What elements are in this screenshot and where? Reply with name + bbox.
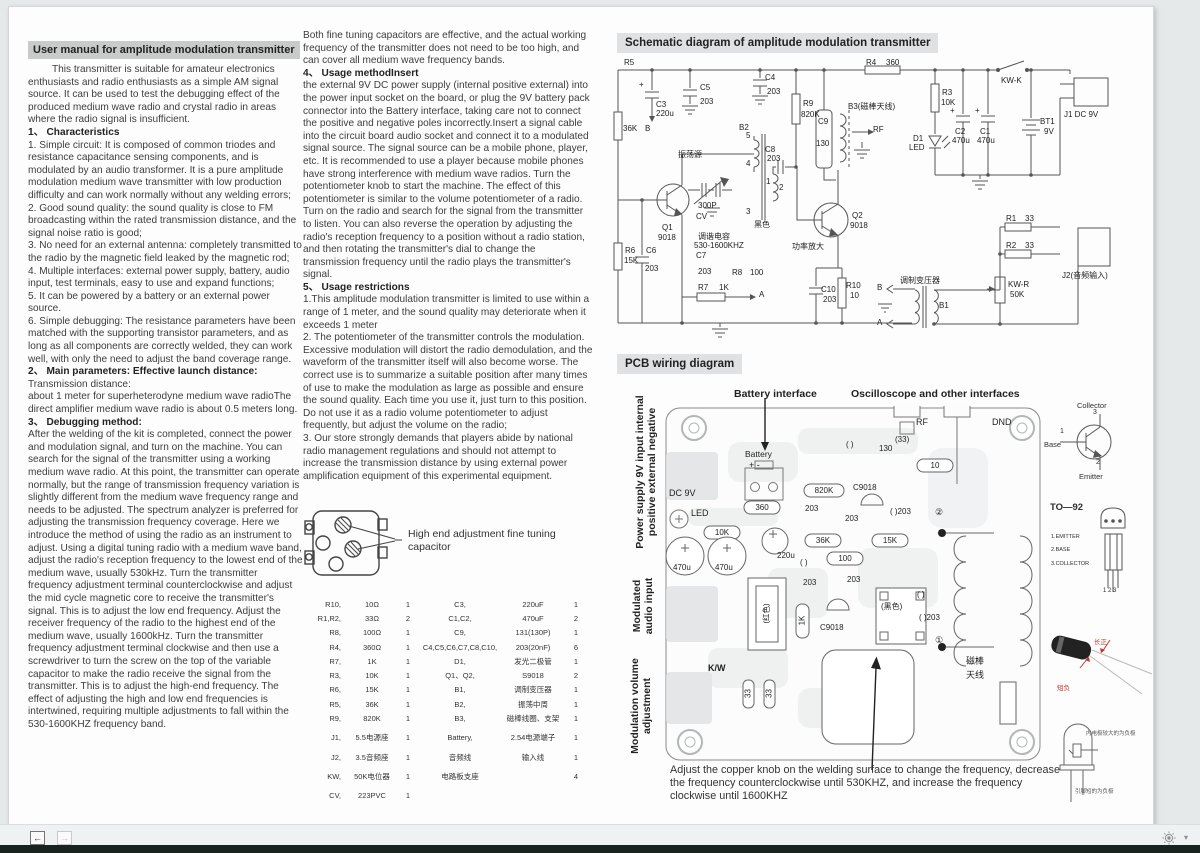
parts-table: R10, 10Ω 1 C3, 220uF 1 R1,R2, 33Ω 2 C1,C… xyxy=(306,597,578,803)
c6-label: C6 xyxy=(646,246,656,255)
part-ref-2: 电路板支座 xyxy=(418,771,502,782)
c10-value: 203 xyxy=(823,295,836,304)
part-ref: R4, xyxy=(306,643,346,652)
r3-label: R3 xyxy=(942,88,952,97)
c5-value: 203 xyxy=(700,97,713,106)
characteristic-1: 1. Simple circuit: It is composed of com… xyxy=(28,140,304,203)
cv-label: CV xyxy=(696,212,707,221)
transmission-distance-text: about 1 meter for superheterodyne medium… xyxy=(28,391,304,416)
c4-label: C4 xyxy=(765,73,775,82)
part-value-2: 调制变压器 xyxy=(502,684,564,695)
r1-value: 33 xyxy=(1025,214,1034,223)
c9-value: 130 xyxy=(816,139,829,148)
r2-value: 33 xyxy=(1025,241,1034,250)
c4-value: 203 xyxy=(767,87,780,96)
c3-label: C3 xyxy=(656,100,666,109)
part-ref: CV, xyxy=(306,791,346,800)
display-settings-icon[interactable] xyxy=(1160,830,1178,846)
c2-value: 470u xyxy=(952,136,970,145)
r5-value: 36K xyxy=(623,124,637,133)
c1-plus: + xyxy=(975,106,980,115)
d1-label: D1 xyxy=(913,134,923,143)
restriction-3: 3. Our store strongly demands that playe… xyxy=(303,433,593,483)
part-value: 1K xyxy=(346,657,398,666)
rod-antenna-label-2: 天线 xyxy=(966,668,984,681)
part-qty-2: 1 xyxy=(564,753,578,762)
part-ref: R5, xyxy=(306,700,346,709)
d1-value: LED xyxy=(909,143,925,152)
pcb-title: PCB wiring diagram xyxy=(617,354,742,374)
part-value: 360Ω xyxy=(346,643,398,652)
a-test-point: A xyxy=(759,290,764,299)
r8-label: R8 xyxy=(732,268,742,277)
part-ref-2: C3, xyxy=(418,600,502,609)
part-value-2: 振荡中周 xyxy=(502,699,564,710)
part-value-2: 发光二极管 xyxy=(502,656,564,667)
intro-paragraph: This transmitter is suitable for amateur… xyxy=(28,64,304,127)
q2-footprint-label: C9018 xyxy=(820,623,844,632)
capacitor-positive-note: 长正 xyxy=(1094,636,1107,646)
c220u-label: 220u xyxy=(777,551,795,560)
part-value-2: 输入线 xyxy=(502,752,564,763)
side-label-audio: Modulated audio input xyxy=(631,574,657,638)
section-4-heading: 4、 Usage methodInsert xyxy=(303,68,593,81)
section-3-heading: 3、 Debugging method: xyxy=(28,417,304,430)
table-row: CV, 223PVC 1 xyxy=(306,789,578,803)
part-value-2: S9018 xyxy=(502,671,564,680)
restriction-2: 2. The potentiometer of the transmitter … xyxy=(303,332,593,433)
q2-label: Q2 xyxy=(852,211,863,220)
part-value-2: 470uF xyxy=(502,614,564,623)
usage-method-text: the external 9V DC power supply (interna… xyxy=(303,80,593,282)
part-qty-2: 2 xyxy=(564,671,578,680)
base-pin-number: 1 xyxy=(1060,428,1064,435)
r6-label: R6 xyxy=(625,246,635,255)
r10-label: R10 xyxy=(846,281,861,290)
c1-value: 470u xyxy=(977,136,995,145)
c3-plus: + xyxy=(639,80,644,89)
led-label: LED xyxy=(691,508,709,518)
part-value: 10K xyxy=(346,671,398,680)
pad-pair-label-3: ( ) xyxy=(917,590,925,599)
part-qty: 1 xyxy=(398,600,418,609)
part-ref-2: D1, xyxy=(418,657,502,666)
kw-pot-label: K/W xyxy=(708,663,726,673)
to92-pin1-label: 1.EMITTER xyxy=(1051,534,1080,540)
chevron-down-icon[interactable]: ▾ xyxy=(1184,833,1188,842)
kwk-label: KW-K xyxy=(1001,76,1022,85)
debugging-method-text: After the welding of the kit is complete… xyxy=(28,429,304,731)
c10-label: C10 xyxy=(821,285,836,294)
part-value: 15K xyxy=(346,685,398,694)
part-qty: 2 xyxy=(398,614,418,623)
trimmer-capacitor-diagram xyxy=(303,505,403,585)
to92-pins-label: 1 2 3 xyxy=(1103,588,1116,594)
fine-tuning-paragraph: Both fine tuning capacitors are effectiv… xyxy=(303,30,593,68)
c7-label: C7 xyxy=(696,251,706,260)
r8-value: 100 xyxy=(750,268,763,277)
q1-label: Q1 xyxy=(662,223,673,232)
c2-label: C2 xyxy=(955,127,965,136)
part-value: 5.5电源座 xyxy=(346,732,398,743)
bt1-value: 9V xyxy=(1044,127,1054,136)
forward-button[interactable]: → xyxy=(57,831,72,845)
capacitor-negative-note: 短负 xyxy=(1057,682,1070,692)
c7-value: 203 xyxy=(698,267,711,276)
characteristic-2: 2. Good sound quality: the sound quality… xyxy=(28,203,304,241)
rod-antenna-label-1: 磁棒 xyxy=(966,654,984,667)
r7-label: R7 xyxy=(698,283,708,292)
j2-label: J2(音频输入) xyxy=(1062,270,1108,281)
part-qty: 1 xyxy=(398,753,418,762)
table-row: R7, 1K 1 D1, 发光二极管 1 xyxy=(306,654,578,668)
b-test-point: B xyxy=(645,124,650,133)
table-row: R9, 820K 1 B3, 磁棒线圈、支架 1 xyxy=(306,711,578,725)
characteristic-3: 3. No need for an external antenna: comp… xyxy=(28,240,304,265)
b2-pin2: 2 xyxy=(779,183,783,192)
middle-column: Both fine tuning capacitors are effectiv… xyxy=(303,30,593,483)
part-ref-2: B1, xyxy=(418,685,502,694)
part-qty-2: 1 xyxy=(564,685,578,694)
cv-value: 300P xyxy=(698,201,717,210)
transmission-distance-label: Transmission distance: xyxy=(28,379,304,392)
left-column: This transmitter is suitable for amateur… xyxy=(28,64,304,731)
r1k-label: 1K xyxy=(798,606,807,636)
black-coil-label: (黑色) xyxy=(881,601,902,612)
pad-pair-label-1: ( ) xyxy=(846,440,854,449)
r33-label-2: 33 xyxy=(765,683,774,705)
part-value-2: 131(130P) xyxy=(502,628,564,637)
b2-pin4: 4 xyxy=(746,159,750,168)
part-value-2: 203(20nF) xyxy=(502,643,564,652)
part-ref-2: C1,C2, xyxy=(418,614,502,623)
part-qty: 1 xyxy=(398,628,418,637)
part-ref-2: 音频线 xyxy=(418,752,502,763)
c203-label-2: 203 xyxy=(845,514,858,523)
tuning-range-label: 530-1600KHZ xyxy=(694,241,744,250)
to92-pin2-label: 2.BASE xyxy=(1051,547,1070,553)
r33-pads-label: (33) xyxy=(895,435,909,444)
r5-label: R5 xyxy=(624,58,634,67)
restriction-1: 1.This amplitude modulation transmitter … xyxy=(303,294,593,332)
led-pin-note: 引脚短的为负极 xyxy=(1075,787,1114,795)
r10-label: 10 xyxy=(917,461,953,470)
part-ref-2: C9, xyxy=(418,628,502,637)
c8-value: 203 xyxy=(767,154,780,163)
section-2-heading: 2、 Main parameters: Effective launch dis… xyxy=(28,366,304,379)
emitter-pin-number: 2 xyxy=(1096,459,1100,466)
c203-label-1: 203 xyxy=(805,504,818,513)
table-row: J2, 3.5音频座 1 音频线 输入线 1 xyxy=(306,750,578,764)
part-value: 50K电位器 xyxy=(346,771,398,782)
table-row: J1, 5.5电源座 1 Battery, 2.54电源端子 1 xyxy=(306,731,578,745)
oscillation-source-label: 振荡源 xyxy=(678,149,702,160)
b3-label: B3(磁棒天线) xyxy=(848,101,895,112)
part-ref: R6, xyxy=(306,685,346,694)
part-qty: 1 xyxy=(398,714,418,723)
table-row: R1,R2, 33Ω 2 C1,C2, 470uF 2 xyxy=(306,611,578,625)
part-ref-2: Q1、Q2, xyxy=(418,670,502,681)
dnd-pad-label: DND xyxy=(992,417,1012,427)
q1-footprint-label: C9018 xyxy=(853,483,877,492)
part-qty-2: 1 xyxy=(564,628,578,637)
bt1-label: BT1 xyxy=(1040,117,1055,126)
table-row: R4, 360Ω 1 C4,C5,C6,C7,C8,C10, 203(20nF)… xyxy=(306,640,578,654)
part-qty-2: 1 xyxy=(564,714,578,723)
page-title: User manual for amplitude modulation tra… xyxy=(28,41,300,59)
kwr-label: KW-R xyxy=(1008,280,1029,289)
schematic-title: Schematic diagram of amplitude modulatio… xyxy=(617,33,938,53)
dc9v-label: DC 9V xyxy=(669,488,696,498)
viewer-toolbar xyxy=(0,824,1200,846)
part-qty-2: 1 xyxy=(564,600,578,609)
part-ref: R1,R2, xyxy=(306,614,346,623)
r100-label: 100 xyxy=(827,554,863,563)
r10-value: 10 xyxy=(850,291,859,300)
r9-label: R9 xyxy=(803,99,813,108)
part-ref: R3, xyxy=(306,671,346,680)
b-mark-2: B xyxy=(877,283,882,292)
r9-value: 820K xyxy=(801,110,820,119)
component-photos xyxy=(1040,610,1200,820)
red-transformer-label: (红色) xyxy=(761,584,772,644)
emitter-label: Emitter xyxy=(1079,472,1103,481)
oscilloscope-interfaces-label: Oscilloscope and other interfaces xyxy=(851,388,1020,400)
section-5-heading: 5、 Usage restrictions xyxy=(303,282,593,295)
part-qty-2: 2 xyxy=(564,614,578,623)
part-qty: 1 xyxy=(398,685,418,694)
part-ref: R9, xyxy=(306,714,346,723)
collector-pin-number: 3 xyxy=(1093,409,1097,416)
c9-130-label: 130 xyxy=(879,444,892,453)
part-ref: R7, xyxy=(306,657,346,666)
collector-label: Collector xyxy=(1077,401,1107,410)
terminal-1-label: ① xyxy=(935,635,943,646)
table-row: R10, 10Ω 1 C3, 220uF 1 xyxy=(306,597,578,611)
part-qty-2: 1 xyxy=(564,733,578,742)
battery-label: Battery xyxy=(745,449,772,459)
r820k-label: 820K xyxy=(804,486,844,495)
part-ref-2: C4,C5,C6,C7,C8,C10, xyxy=(418,643,502,652)
part-value: 223PVC xyxy=(346,791,398,800)
part-value: 36K xyxy=(346,700,398,709)
table-row: R5, 36K 1 B2, 振荡中周 1 xyxy=(306,697,578,711)
rf-pad-label: RF xyxy=(916,417,928,427)
c2-plus: + xyxy=(950,106,955,115)
r4-label: R4 xyxy=(866,58,876,67)
mod-transformer-label: 调制变压器 xyxy=(900,275,940,286)
r36k-label: 36K xyxy=(805,536,841,545)
b2-pin5: 5 xyxy=(746,131,750,140)
table-row: KW, 50K电位器 1 电路板支座 4 xyxy=(306,769,578,783)
c1-label: C1 xyxy=(980,127,990,136)
part-ref: R10, xyxy=(306,600,346,609)
trimmer-callout: High end adjustment fine tuning capacito… xyxy=(408,528,568,554)
c470u-label-1: 470u xyxy=(673,563,691,572)
c9-label: C9 xyxy=(818,117,828,126)
r2-label: R2 xyxy=(1006,241,1016,250)
part-qty-2: 1 xyxy=(564,657,578,666)
part-value: 10Ω xyxy=(346,600,398,609)
b2-pin3: 3 xyxy=(746,207,750,216)
power-amp-label: 功率放大 xyxy=(792,241,824,252)
c203-pads-label-1: ( )203 xyxy=(890,507,911,516)
part-value-2: 220uF xyxy=(502,600,564,609)
taskbar-strip xyxy=(0,845,1200,853)
characteristic-5: 5. It can be powered by a battery or an … xyxy=(28,291,304,316)
table-row: R3, 10K 1 Q1、Q2, S9018 2 xyxy=(306,668,578,682)
part-value: 100Ω xyxy=(346,628,398,637)
part-qty: 1 xyxy=(398,772,418,781)
schematic-section: R4 360 R5 36K + C3 220u B C5 203 C4 203 … xyxy=(612,58,1152,348)
back-button[interactable]: ← xyxy=(30,831,45,845)
frequency-adjust-note: Adjust the copper knob on the welding su… xyxy=(670,764,1062,804)
r4-value: 360 xyxy=(886,58,899,67)
q1-value: 9018 xyxy=(658,233,676,242)
part-qty: 1 xyxy=(398,791,418,800)
part-ref-2: B2, xyxy=(418,700,502,709)
characteristic-4: 4. Multiple interfaces: external power s… xyxy=(28,266,304,291)
part-qty-2: 4 xyxy=(564,772,578,781)
r360-label: 360 xyxy=(744,503,780,512)
part-qty-2: 6 xyxy=(564,643,578,652)
led-electrode-note: 内电极较大的为负极 xyxy=(1086,729,1136,737)
part-value-2: 2.54电源端子 xyxy=(502,732,564,743)
j1-label: J1 DC 9V xyxy=(1064,110,1098,119)
part-value: 33Ω xyxy=(346,614,398,623)
table-row: R8, 100Ω 1 C9, 131(130P) 1 xyxy=(306,626,578,640)
c3-value: 220u xyxy=(656,109,674,118)
part-qty: 1 xyxy=(398,700,418,709)
battery-polarity-label: + - xyxy=(749,460,760,470)
black-label: 黑色 xyxy=(754,219,770,230)
c5-label: C5 xyxy=(700,83,710,92)
side-label-volume: Modulation volume adjustment xyxy=(629,651,655,761)
c203-pads-label-2: ( )203 xyxy=(919,613,940,622)
r7-value: 1K xyxy=(719,283,729,292)
r10k-label: 10K xyxy=(704,528,740,537)
terminal-2-label: ② xyxy=(935,507,943,518)
part-ref: R8, xyxy=(306,628,346,637)
pcb-section: Battery interface Oscilloscope and other… xyxy=(648,388,1048,770)
part-value: 3.5音频座 xyxy=(346,752,398,763)
part-ref: KW, xyxy=(306,772,346,781)
c203-label-4: 203 xyxy=(847,575,860,584)
r15k-label: 15K xyxy=(872,536,908,545)
base-label: Base xyxy=(1044,440,1061,449)
r1-label: R1 xyxy=(1006,214,1016,223)
c203-label-3: 203 xyxy=(803,578,816,587)
rf-label: RF xyxy=(873,125,884,134)
a-mark-2: A xyxy=(877,318,882,327)
pad-pair-label-2: ( ) xyxy=(800,558,808,567)
to92-pin3-label: 3.COLLECTOR xyxy=(1051,561,1089,567)
transistor-pinout-diagram xyxy=(1040,390,1200,610)
part-qty: 1 xyxy=(398,643,418,652)
part-ref: J2, xyxy=(306,753,346,762)
section-1-heading: 1、 Characteristics xyxy=(28,127,304,140)
b1-label: B1 xyxy=(939,301,949,310)
battery-interface-label: Battery interface xyxy=(734,388,817,400)
q2-value: 9018 xyxy=(850,221,868,230)
part-ref: J1, xyxy=(306,733,346,742)
c8-label: C8 xyxy=(765,145,775,154)
part-qty: 1 xyxy=(398,657,418,666)
c470u-label-2: 470u xyxy=(715,563,733,572)
part-qty: 1 xyxy=(398,671,418,680)
side-label-power: Power supply 9V input internal positive … xyxy=(634,387,660,557)
part-qty-2: 1 xyxy=(564,700,578,709)
to92-label: TO—92 xyxy=(1050,502,1083,513)
part-value-2: 磁棒线圈、支架 xyxy=(502,713,564,724)
c6-value: 203 xyxy=(645,264,658,273)
part-qty: 1 xyxy=(398,733,418,742)
part-ref-2: Battery, xyxy=(418,733,502,742)
table-row: R6, 15K 1 B1, 调制变压器 1 xyxy=(306,683,578,697)
b2-pin1: 1 xyxy=(766,177,770,186)
characteristic-6: 6. Simple debugging: The resistance para… xyxy=(28,316,304,366)
r6-value: 15K xyxy=(624,256,638,265)
kwr-value: 50K xyxy=(1010,290,1024,299)
part-value: 820K xyxy=(346,714,398,723)
part-ref-2: B3, xyxy=(418,714,502,723)
r33-label-1: 33 xyxy=(744,683,753,705)
